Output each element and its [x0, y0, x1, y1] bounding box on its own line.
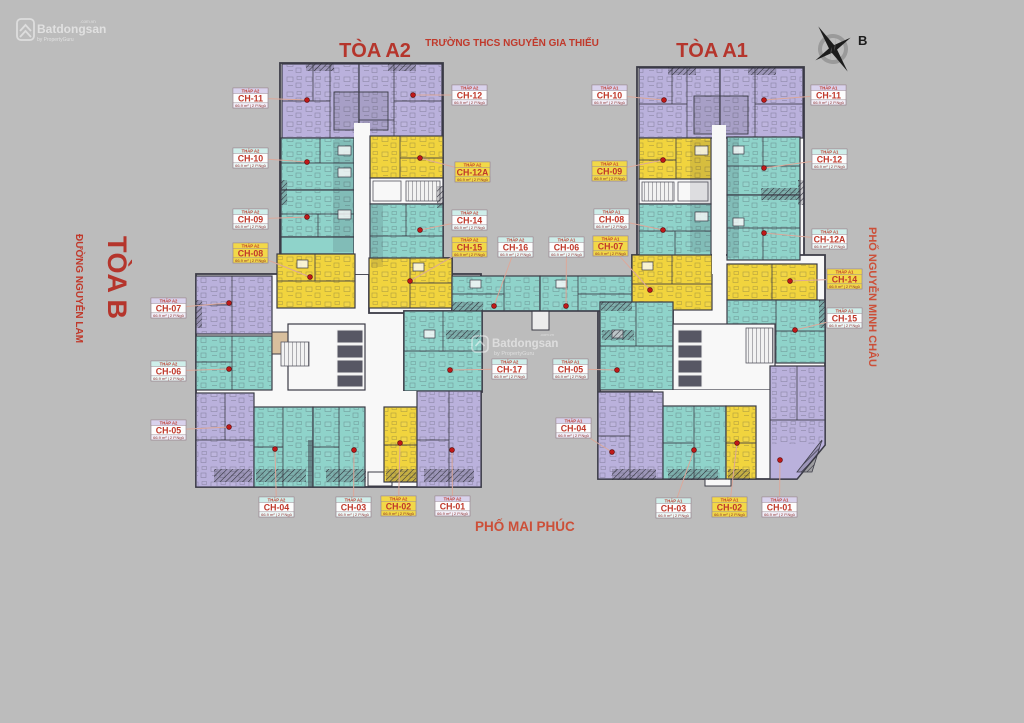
svg-text:66.9 m² | 2 P.Ngủ: 66.9 m² | 2 P.Ngủ: [500, 252, 531, 257]
svg-text:CH-11: CH-11: [816, 90, 841, 100]
svg-text:66.9 m² | 2 P.Ngủ: 66.9 m² | 2 P.Ngủ: [814, 244, 845, 249]
svg-text:CH-08: CH-08: [599, 214, 625, 224]
svg-text:66.9 m² | 2 P.Ngủ: 66.9 m² | 2 P.Ngủ: [658, 513, 689, 518]
svg-text:66.9 m² | 2 P.Ngủ: 66.9 m² | 2 P.Ngủ: [235, 163, 266, 168]
svg-text:CH-12: CH-12: [457, 90, 483, 100]
svg-text:66.9 m² | 2 P.Ngủ: 66.9 m² | 2 P.Ngủ: [595, 251, 626, 256]
svg-text:66.9 m² | 2 P.Ngủ: 66.9 m² | 2 P.Ngủ: [235, 258, 266, 263]
svg-text:66.9 m² | 2 P.Ngủ: 66.9 m² | 2 P.Ngủ: [383, 511, 414, 516]
svg-text:CH-06: CH-06: [156, 366, 182, 376]
svg-text:66.9 m² | 2 P.Ngủ: 66.9 m² | 2 P.Ngủ: [829, 284, 860, 289]
svg-text:66.9 m² | 2 P.Ngủ: 66.9 m² | 2 P.Ngủ: [596, 224, 627, 229]
svg-text:.com.vn: .com.vn: [80, 19, 96, 24]
svg-text:CH-02: CH-02: [386, 501, 412, 511]
svg-text:CH-07: CH-07: [156, 303, 182, 313]
svg-text:66.9 m² | 2 P.Ngủ: 66.9 m² | 2 P.Ngủ: [454, 100, 485, 105]
svg-text:CH-02: CH-02: [717, 502, 743, 512]
svg-text:CH-15: CH-15: [832, 313, 858, 323]
svg-text:Batdongsan: Batdongsan: [37, 22, 106, 36]
svg-text:66.9 m² | 2 P.Ngủ: 66.9 m² | 2 P.Ngủ: [261, 512, 292, 517]
svg-text:TRƯỜNG THCS NGUYỄN GIA THIẾU: TRƯỜNG THCS NGUYỄN GIA THIẾU: [425, 36, 599, 49]
svg-text:CH-10: CH-10: [597, 90, 623, 100]
svg-text:66.9 m² | 2 P.Ngủ: 66.9 m² | 2 P.Ngủ: [829, 323, 860, 328]
svg-text:66.9 m² | 2 P.Ngủ: 66.9 m² | 2 P.Ngủ: [437, 511, 468, 516]
svg-text:CH-05: CH-05: [558, 364, 584, 374]
svg-text:66.9 m² | 2 P.Ngủ: 66.9 m² | 2 P.Ngủ: [153, 313, 184, 318]
svg-text:66.9 m² | 2 P.Ngủ: 66.9 m² | 2 P.Ngủ: [558, 433, 589, 438]
svg-text:TÒA B: TÒA B: [102, 236, 133, 319]
svg-text:PHỐ NGUYỄN MINH CHÂU: PHỐ NGUYỄN MINH CHÂU: [866, 227, 880, 367]
svg-text:CH-12A: CH-12A: [814, 234, 846, 244]
svg-text:PHỐ MAI PHÚC: PHỐ MAI PHÚC: [475, 519, 575, 534]
svg-text:CH-09: CH-09: [597, 166, 623, 176]
svg-text:by PropertyGuru: by PropertyGuru: [494, 351, 534, 357]
svg-text:CH-10: CH-10: [238, 153, 264, 163]
svg-text:66.9 m² | 2 P.Ngủ: 66.9 m² | 2 P.Ngủ: [494, 374, 525, 379]
svg-text:CH-05: CH-05: [156, 425, 182, 435]
svg-text:CH-11: CH-11: [238, 93, 263, 103]
svg-text:CH-14: CH-14: [832, 274, 858, 284]
svg-text:ĐƯỜNG NGUYỄN LAM: ĐƯỜNG NGUYỄN LAM: [73, 234, 86, 343]
svg-text:TÒA A2: TÒA A2: [339, 38, 411, 62]
svg-text:CH-09: CH-09: [238, 214, 264, 224]
svg-text:66.9 m² | 2 P.Ngủ: 66.9 m² | 2 P.Ngủ: [235, 103, 266, 108]
svg-text:CH-12: CH-12: [817, 154, 843, 164]
svg-text:B: B: [858, 33, 867, 48]
svg-text:66.9 m² | 2 P.Ngủ: 66.9 m² | 2 P.Ngủ: [594, 100, 625, 105]
svg-text:66.9 m² | 2 P.Ngủ: 66.9 m² | 2 P.Ngủ: [153, 376, 184, 381]
svg-text:66.9 m² | 2 P.Ngủ: 66.9 m² | 2 P.Ngủ: [764, 512, 795, 517]
svg-text:66.9 m² | 2 P.Ngủ: 66.9 m² | 2 P.Ngủ: [454, 252, 485, 257]
svg-text:66.9 m² | 2 P.Ngủ: 66.9 m² | 2 P.Ngủ: [714, 512, 745, 517]
svg-text:CH-16: CH-16: [503, 242, 529, 252]
svg-text:66.9 m² | 2 P.Ngủ: 66.9 m² | 2 P.Ngủ: [814, 164, 845, 169]
svg-text:66.9 m² | 2 P.Ngủ: 66.9 m² | 2 P.Ngủ: [555, 374, 586, 379]
svg-text:66.9 m² | 2 P.Ngủ: 66.9 m² | 2 P.Ngủ: [153, 435, 184, 440]
svg-text:66.9 m² | 2 P.Ngủ: 66.9 m² | 2 P.Ngủ: [813, 100, 844, 105]
svg-text:.com.vn: .com.vn: [540, 332, 554, 337]
svg-text:66.9 m² | 2 P.Ngủ: 66.9 m² | 2 P.Ngủ: [457, 177, 488, 182]
svg-text:66.9 m² | 2 P.Ngủ: 66.9 m² | 2 P.Ngủ: [454, 225, 485, 230]
svg-text:CH-03: CH-03: [341, 502, 367, 512]
svg-text:CH-03: CH-03: [661, 503, 687, 513]
svg-text:CH-15: CH-15: [457, 242, 483, 252]
svg-text:CH-07: CH-07: [598, 241, 624, 251]
svg-text:by PropertyGuru: by PropertyGuru: [37, 37, 74, 43]
svg-text:CH-12A: CH-12A: [457, 167, 489, 177]
svg-text:66.9 m² | 2 P.Ngủ: 66.9 m² | 2 P.Ngủ: [594, 176, 625, 181]
svg-text:CH-08: CH-08: [238, 248, 264, 258]
svg-text:CH-01: CH-01: [767, 502, 793, 512]
svg-text:CH-17: CH-17: [497, 364, 523, 374]
svg-text:66.9 m² | 2 P.Ngủ: 66.9 m² | 2 P.Ngủ: [551, 252, 582, 257]
svg-text:CH-14: CH-14: [457, 215, 483, 225]
svg-text:CH-01: CH-01: [440, 501, 466, 511]
svg-text:TÒA A1: TÒA A1: [676, 38, 748, 62]
svg-text:66.9 m² | 2 P.Ngủ: 66.9 m² | 2 P.Ngủ: [338, 512, 369, 517]
svg-text:CH-06: CH-06: [554, 242, 580, 252]
svg-text:CH-04: CH-04: [561, 423, 587, 433]
svg-text:Batdongsan: Batdongsan: [492, 338, 558, 350]
svg-text:66.9 m² | 2 P.Ngủ: 66.9 m² | 2 P.Ngủ: [235, 224, 266, 229]
svg-text:CH-04: CH-04: [264, 502, 290, 512]
